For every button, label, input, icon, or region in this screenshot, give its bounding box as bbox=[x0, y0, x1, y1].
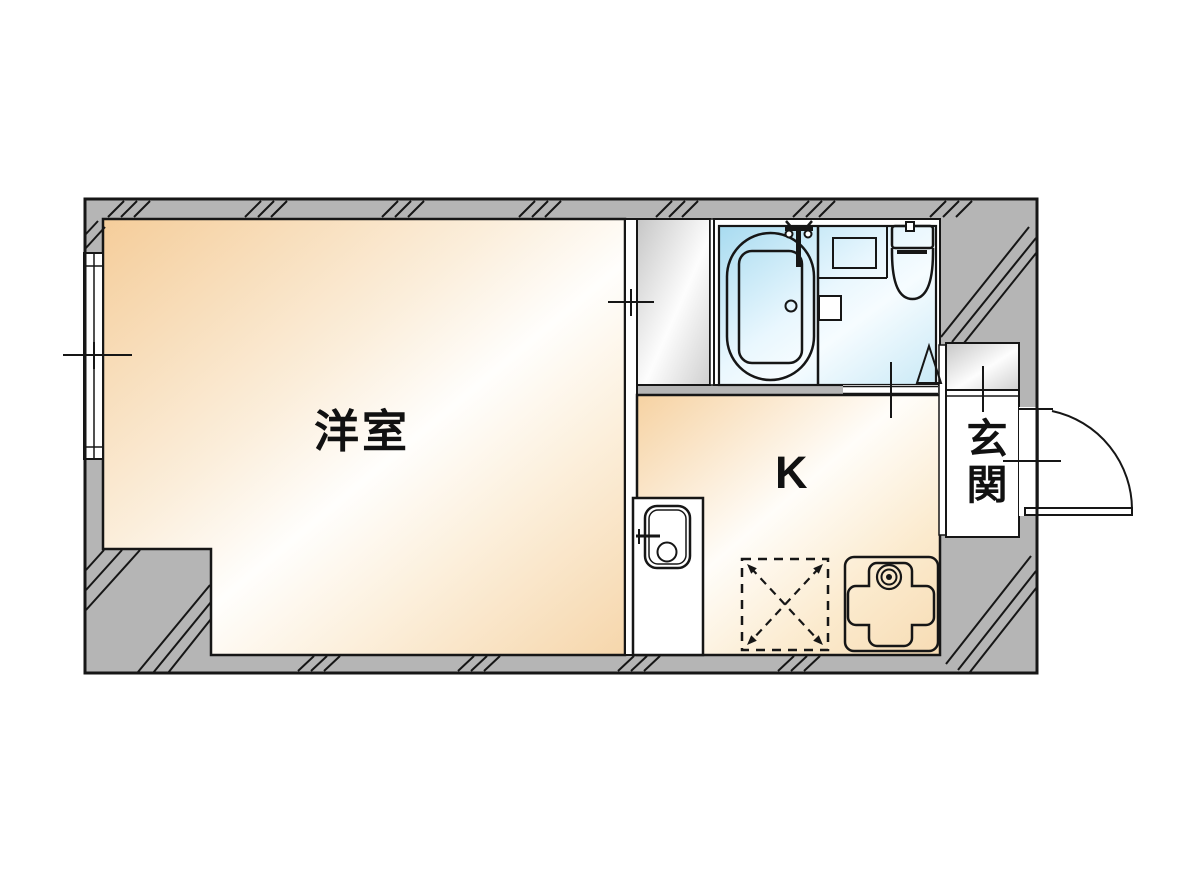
floorplan-drawing bbox=[0, 0, 1200, 880]
kitchen-sink bbox=[633, 498, 703, 655]
floorplan-page: 洋室 K 玄関 bbox=[0, 0, 1200, 880]
sink-drain bbox=[658, 543, 677, 562]
door-swing-arc bbox=[1052, 411, 1132, 511]
toilet-tank-button bbox=[906, 222, 914, 231]
entrance-label: 玄関 bbox=[961, 417, 1004, 509]
kitchen-label: K bbox=[775, 449, 808, 496]
door-leaf bbox=[1025, 508, 1132, 515]
western-room-label: 洋室 bbox=[314, 408, 410, 455]
toilet-seat-hinge bbox=[897, 250, 927, 254]
